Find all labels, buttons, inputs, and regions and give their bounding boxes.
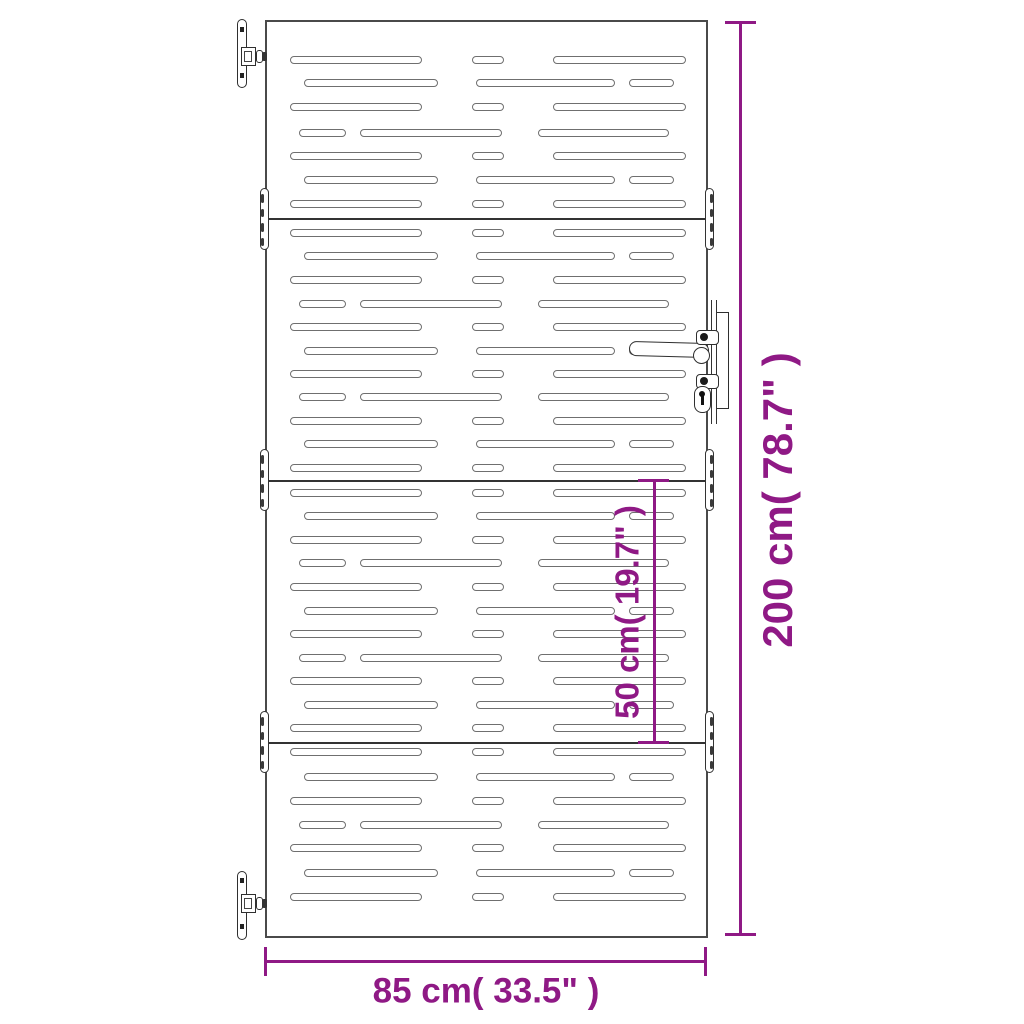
slot: [553, 797, 686, 805]
hinge-knuckle: [710, 761, 714, 770]
slot: [553, 844, 686, 852]
slot: [472, 152, 504, 160]
slot: [629, 79, 674, 87]
slot: [472, 370, 504, 378]
slot: [299, 393, 346, 401]
dimension-end-cap: [725, 21, 756, 24]
dimension-end-cap: [725, 933, 756, 936]
dimension-end-cap: [264, 947, 267, 976]
slot: [472, 56, 504, 64]
hinge-pin: [262, 52, 267, 61]
slot: [629, 176, 674, 184]
slot: [538, 654, 669, 662]
dimension-end-cap: [638, 479, 669, 482]
slot: [290, 229, 422, 237]
dimension-end-cap: [638, 741, 669, 744]
hinge-knuckle: [261, 732, 265, 741]
slot: [472, 630, 504, 638]
hinge-bracket-inner: [244, 51, 252, 62]
slot: [476, 347, 615, 355]
slot: [290, 844, 422, 852]
hinge-knuckle: [710, 499, 714, 508]
slot: [290, 724, 422, 732]
hinge-knuckle: [261, 223, 265, 232]
slot: [290, 56, 422, 64]
slot: [299, 300, 346, 308]
slot: [290, 536, 422, 544]
slot: [538, 300, 669, 308]
slot: [304, 440, 438, 448]
slot: [290, 152, 422, 160]
slot: [553, 370, 686, 378]
hinge-knuckle: [710, 732, 714, 741]
hinge-bracket-inner: [244, 898, 252, 909]
handle-backplate: [716, 312, 729, 409]
slot: [299, 559, 346, 567]
slot: [472, 583, 504, 591]
hinge-knuckle: [261, 761, 265, 770]
slot: [538, 393, 669, 401]
slot: [553, 56, 686, 64]
panel-joint-line: [267, 218, 706, 220]
hinge-knuckle: [710, 484, 714, 493]
slot: [304, 512, 438, 520]
slot: [290, 630, 422, 638]
slot: [538, 821, 669, 829]
slot: [290, 276, 422, 284]
slot: [360, 559, 502, 567]
slot: [629, 869, 674, 877]
dimension-width-label: 85 cm( 33.5" ): [373, 974, 600, 1009]
slot: [472, 724, 504, 732]
slot: [472, 464, 504, 472]
slot: [476, 701, 615, 709]
slot: [299, 821, 346, 829]
slot: [472, 229, 504, 237]
dimension-line: [265, 960, 707, 963]
slot: [472, 536, 504, 544]
hinge-knuckle: [261, 717, 265, 726]
slot: [299, 654, 346, 662]
screw-icon: [240, 878, 244, 883]
slot: [476, 79, 615, 87]
slot: [553, 464, 686, 472]
slot: [290, 748, 422, 756]
slot: [304, 869, 438, 877]
slot: [472, 103, 504, 111]
slot: [553, 893, 686, 901]
slot: [553, 724, 686, 732]
slot: [290, 464, 422, 472]
slot: [553, 200, 686, 208]
slot: [629, 773, 674, 781]
dimension-line: [739, 22, 742, 936]
slot: [472, 677, 504, 685]
slot: [304, 347, 438, 355]
slot: [472, 797, 504, 805]
slot: [360, 654, 502, 662]
slot: [476, 176, 615, 184]
slot: [476, 252, 615, 260]
slot: [553, 229, 686, 237]
dimension-line: [653, 480, 656, 743]
keyhole-icon: [701, 396, 704, 405]
slot: [290, 370, 422, 378]
slot: [472, 417, 504, 425]
slot: [304, 607, 438, 615]
slot: [290, 797, 422, 805]
slot: [472, 489, 504, 497]
slot: [629, 440, 674, 448]
hinge-knuckle: [710, 209, 714, 218]
hinge-knuckle: [710, 223, 714, 232]
slot: [290, 417, 422, 425]
slot: [360, 300, 502, 308]
hinge-knuckle: [261, 209, 265, 218]
slot: [472, 200, 504, 208]
slot: [304, 773, 438, 781]
slot: [472, 323, 504, 331]
slot: [476, 869, 615, 877]
handle-rod: [711, 300, 717, 424]
slot: [538, 559, 669, 567]
slot: [304, 701, 438, 709]
slot: [304, 252, 438, 260]
slot: [472, 276, 504, 284]
hinge-knuckle: [261, 455, 265, 464]
hinge-knuckle: [261, 746, 265, 755]
screw-icon: [700, 377, 708, 385]
slot: [553, 417, 686, 425]
slot: [553, 489, 686, 497]
hinge-pin: [262, 899, 267, 908]
slot: [360, 129, 502, 137]
hinge-knuckle: [261, 194, 265, 203]
slot: [290, 489, 422, 497]
slot: [476, 607, 615, 615]
slot: [476, 773, 615, 781]
screw-icon: [700, 333, 708, 341]
hinge-knuckle: [710, 746, 714, 755]
slot: [629, 252, 674, 260]
hinge-knuckle: [261, 484, 265, 493]
hinge-knuckle: [710, 455, 714, 464]
handle-pivot: [693, 347, 710, 364]
slot: [472, 844, 504, 852]
slot: [360, 393, 502, 401]
hinge-knuckle: [261, 470, 265, 479]
slot: [299, 129, 346, 137]
slot: [290, 893, 422, 901]
hinge-knuckle: [710, 194, 714, 203]
slot: [553, 323, 686, 331]
slot: [476, 512, 615, 520]
screw-icon: [240, 73, 244, 78]
slot: [538, 129, 669, 137]
screw-icon: [240, 924, 244, 929]
hinge-knuckle: [710, 717, 714, 726]
hinge-knuckle: [261, 499, 265, 508]
hinge-knuckle: [710, 470, 714, 479]
gate-dimension-diagram: 200 cm( 78.7" ) 50 cm( 19.7" ) 85 cm( 33…: [0, 0, 1024, 1024]
dimension-section-label: 50 cm( 19.7" ): [611, 505, 644, 719]
slot: [304, 176, 438, 184]
dimension-end-cap: [704, 947, 707, 976]
slot: [304, 79, 438, 87]
slot: [472, 893, 504, 901]
dimension-height-label: 200 cm( 78.7" ): [757, 352, 799, 647]
slot: [290, 583, 422, 591]
slot: [290, 103, 422, 111]
slot: [290, 200, 422, 208]
slot: [472, 748, 504, 756]
slot: [553, 748, 686, 756]
slot: [290, 323, 422, 331]
slot: [553, 103, 686, 111]
slot: [476, 440, 615, 448]
slot: [360, 821, 502, 829]
hinge-knuckle: [710, 238, 714, 247]
hinge-knuckle: [261, 238, 265, 247]
slot: [290, 677, 422, 685]
slot: [553, 152, 686, 160]
slot: [553, 276, 686, 284]
screw-icon: [240, 27, 244, 32]
